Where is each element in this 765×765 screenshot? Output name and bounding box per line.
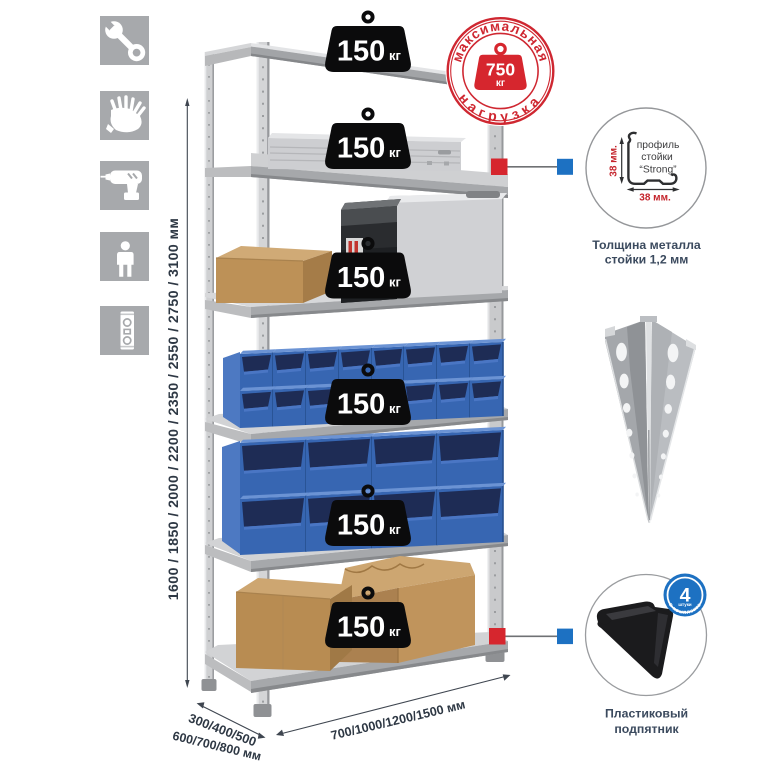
svg-text:стойки: стойки: [641, 152, 673, 163]
svg-text:38 мм.: 38 мм.: [639, 193, 671, 204]
svg-text:подпятник: подпятник: [614, 722, 679, 736]
svg-text:38 мм.: 38 мм.: [609, 145, 620, 177]
svg-text:Толщина металла: Толщина металла: [592, 238, 701, 252]
svg-text:750: 750: [486, 60, 515, 80]
svg-text:профиль: профиль: [637, 139, 680, 151]
svg-text:1600 / 1850 / 2000 / 2200 / 23: 1600 / 1850 / 2000 / 2200 / 2350 / 2550 …: [166, 218, 182, 601]
svg-text:кг: кг: [496, 78, 505, 89]
svg-text:“Strong”: “Strong”: [639, 165, 677, 176]
svg-text:штуки: штуки: [678, 602, 692, 607]
svg-text:Пластиковый: Пластиковый: [605, 707, 688, 721]
svg-text:стойки 1,2 мм: стойки 1,2 мм: [605, 253, 689, 267]
